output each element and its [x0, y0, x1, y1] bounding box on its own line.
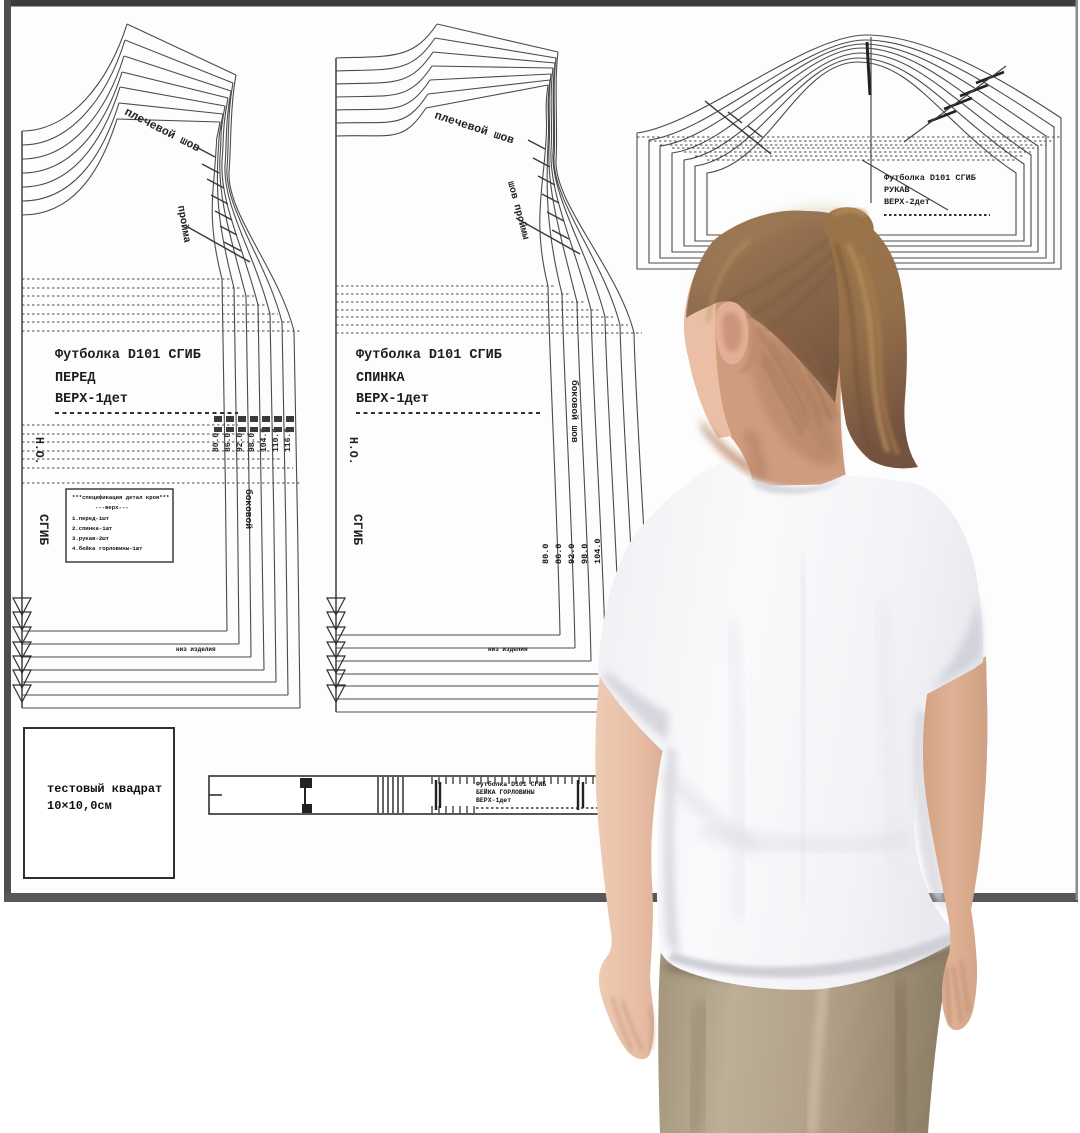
svg-text:98.0: 98.0: [248, 433, 257, 452]
svg-text:боковой шов: боковой шов: [569, 380, 580, 443]
svg-text:тестовый квадрат: тестовый квадрат: [47, 782, 162, 796]
svg-text:боковой: боковой: [243, 489, 254, 529]
svg-text:Н.О.: Н.О.: [32, 437, 45, 465]
svg-text:Футболка D101 СГИБ: Футболка D101 СГИБ: [356, 347, 502, 363]
svg-text:низ изделия: низ изделия: [488, 646, 528, 653]
svg-text:80.0: 80.0: [541, 544, 551, 564]
svg-text:80.0: 80.0: [212, 433, 221, 452]
svg-text:2.спинка-1шт: 2.спинка-1шт: [72, 525, 113, 532]
svg-text:СГИБ: СГИБ: [36, 514, 51, 545]
svg-text:10×10,0см: 10×10,0см: [47, 799, 112, 813]
svg-text:86.0: 86.0: [554, 544, 564, 564]
svg-text:92.0: 92.0: [236, 433, 245, 452]
svg-text:92.0: 92.0: [567, 544, 577, 564]
svg-text:ВЕРХ-1дет: ВЕРХ-1дет: [476, 797, 511, 804]
svg-text:ВЕРХ-2дет: ВЕРХ-2дет: [884, 197, 930, 207]
svg-text:***спецификация детал кроя***: ***спецификация детал кроя***: [72, 494, 169, 501]
svg-text:СПИНКА: СПИНКА: [356, 371, 406, 386]
svg-text:БЕЙКА ГОРЛОВИНЫ: БЕЙКА ГОРЛОВИНЫ: [476, 788, 535, 796]
svg-text:РУКАВ: РУКАВ: [884, 185, 910, 195]
svg-text:Н.О.: Н.О.: [346, 437, 359, 465]
svg-text:104.0: 104.0: [593, 538, 603, 564]
svg-text:4.бейка горловины-1шт: 4.бейка горловины-1шт: [72, 545, 143, 552]
svg-text:ВЕРХ-1дет: ВЕРХ-1дет: [356, 392, 429, 407]
svg-text:98.0: 98.0: [580, 544, 590, 564]
svg-text:ПЕРЕД: ПЕРЕД: [55, 371, 96, 386]
svg-text:ВЕРХ-1дет: ВЕРХ-1дет: [55, 392, 128, 407]
svg-text:86.0: 86.0: [224, 433, 233, 452]
svg-text:Футболка D101 СГИБ: Футболка D101 СГИБ: [476, 780, 546, 788]
svg-text:низ изделия: низ изделия: [176, 646, 216, 653]
svg-text:---верх---: ---верх---: [95, 504, 129, 511]
svg-text:Футболка D101 СГИБ: Футболка D101 СГИБ: [55, 347, 201, 363]
svg-text:СГИБ: СГИБ: [350, 514, 365, 545]
svg-text:1.перед-1шт: 1.перед-1шт: [72, 515, 110, 522]
svg-text:Футболка D101 СГИБ: Футболка D101 СГИБ: [884, 172, 976, 183]
svg-text:3.рукав-2шт: 3.рукав-2шт: [72, 535, 110, 542]
